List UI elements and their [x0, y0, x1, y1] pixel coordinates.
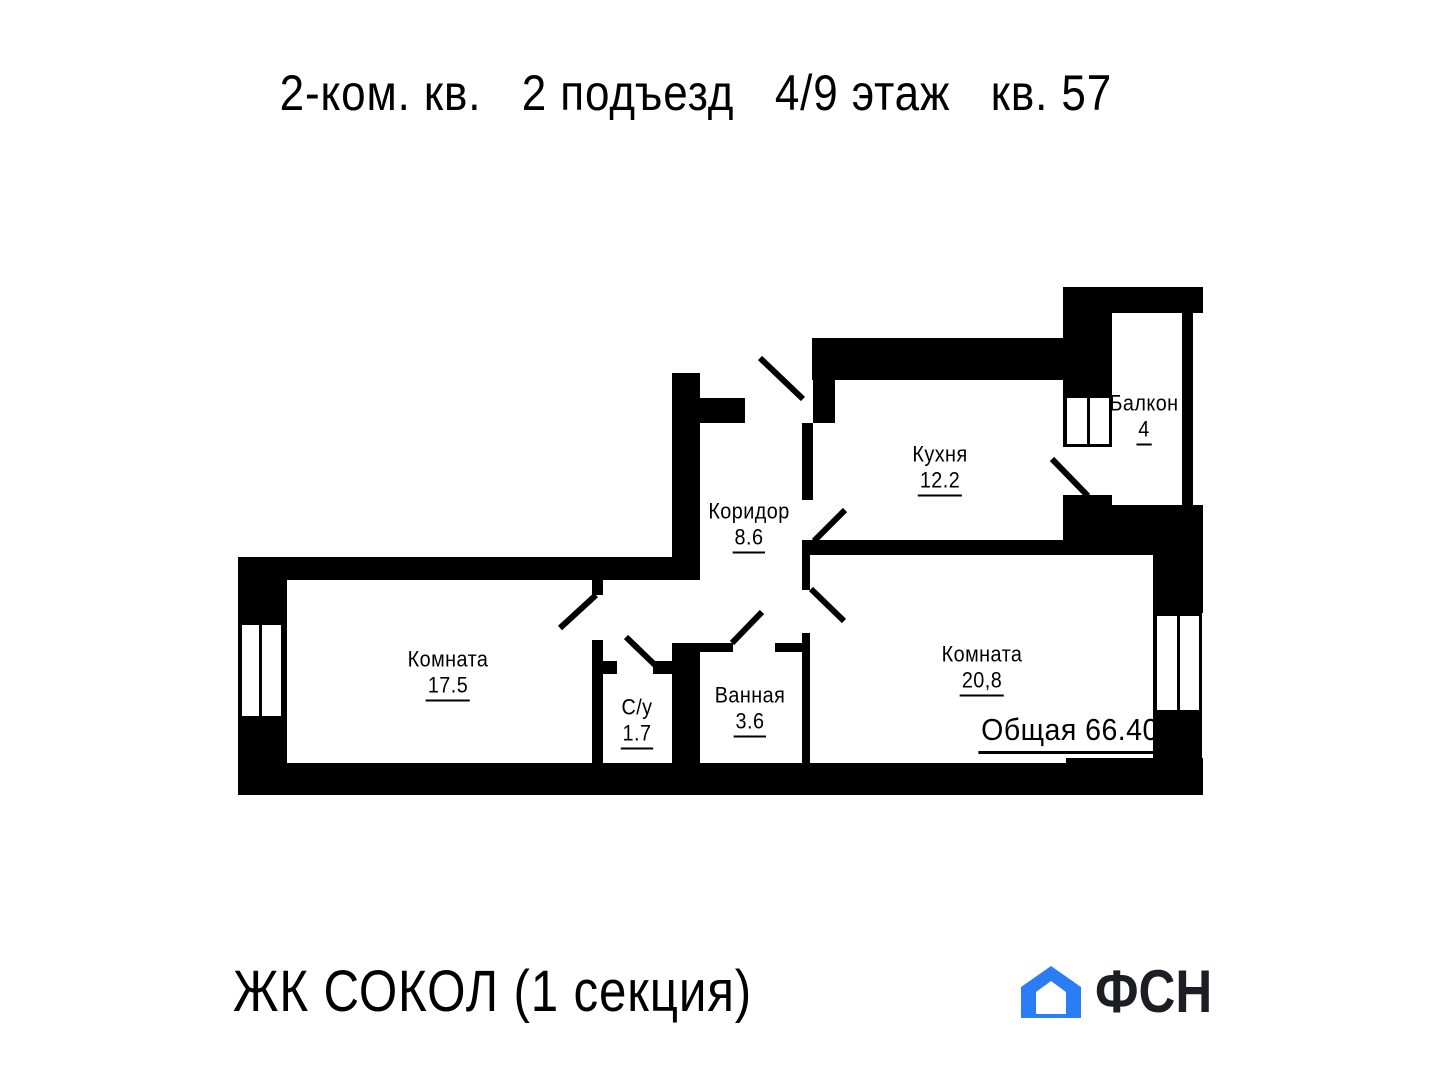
room-label-bathroom: Ванная 3.6 — [715, 683, 786, 738]
room-label-balcony: Балкон 4 — [1109, 391, 1178, 446]
room-area: 20,8 — [960, 668, 1004, 697]
room-area: 17.5 — [426, 673, 470, 702]
brand-logo: ФСН — [1020, 962, 1233, 1022]
room-name: Комната — [408, 647, 489, 672]
window-right-room — [1153, 613, 1202, 713]
door-swing-balcony — [1052, 459, 1088, 496]
room-name: Комната — [942, 642, 1023, 667]
room-name: Коридор — [708, 499, 789, 524]
room-area: 8.6 — [733, 525, 765, 554]
house-logo-icon — [1020, 965, 1082, 1019]
door-swing-bathroom — [732, 612, 762, 643]
room-area: 12.2 — [918, 468, 962, 497]
door-swing-room-1 — [560, 595, 596, 628]
room-name: С/у — [621, 695, 652, 720]
total-area-label: Общая 66.40 — [978, 712, 1161, 754]
room-area: 1.7 — [621, 721, 653, 750]
window-left-room — [238, 621, 287, 720]
room-area: 3.6 — [734, 709, 766, 738]
room-area: 4 — [1136, 417, 1151, 446]
door-swing-wc — [626, 637, 655, 665]
door-swing-entrance — [760, 358, 803, 399]
room-name: Кухня — [912, 442, 967, 467]
window-kitchen-balcony — [1063, 395, 1112, 447]
project-name: ЖК СОКОЛ (1 секция) — [233, 958, 752, 1025]
room-label-room-1: Комната 17.5 — [408, 647, 489, 702]
brand-name: ФСН — [1095, 962, 1212, 1022]
room-name: Ванная — [715, 683, 786, 708]
door-swing-kitchen — [814, 510, 845, 541]
floor-plan-page: 2-ком. кв. 2 подъезд 4/9 этаж кв. 57 — [0, 0, 1441, 1081]
room-label-corridor: Коридор 8.6 — [708, 499, 789, 554]
door-swing-room-2 — [811, 589, 844, 621]
room-name: Балкон — [1109, 391, 1178, 416]
room-label-wc: С/у 1.7 — [621, 695, 653, 750]
room-label-room-2: Комната 20,8 — [942, 642, 1023, 697]
room-label-kitchen: Кухня 12.2 — [912, 442, 967, 497]
